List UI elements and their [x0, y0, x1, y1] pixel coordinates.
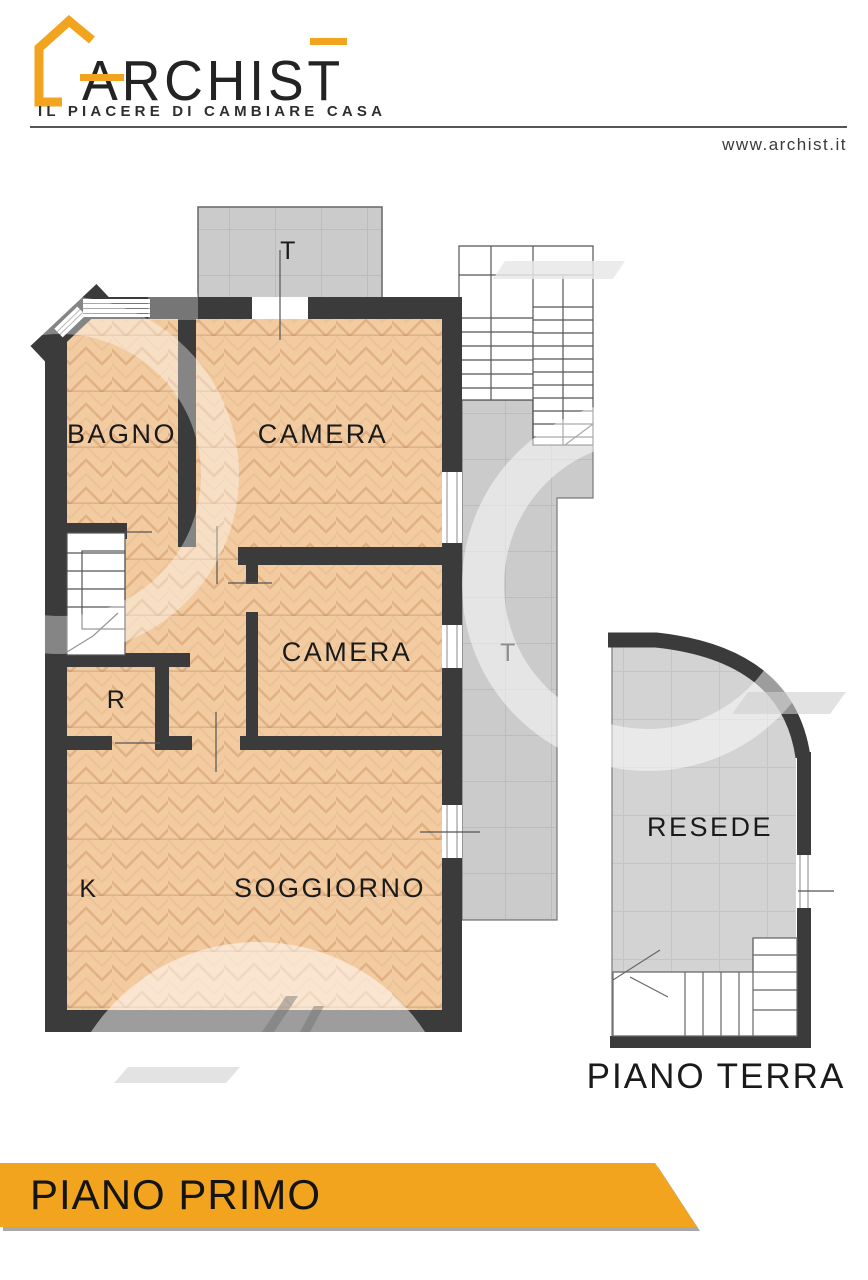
- room-label-ripostiglio: R: [107, 686, 126, 714]
- room-label-camera-1: CAMERA: [258, 419, 389, 449]
- room-label-camera-2: CAMERA: [282, 637, 413, 667]
- room-label-resede: RESEDE: [647, 812, 773, 842]
- archist-logo: ARCHIST: [30, 10, 370, 110]
- room-label-terrace-top: T: [280, 237, 296, 265]
- website-url: www.archist.it: [722, 135, 847, 155]
- ground-floor-caption: PIANO TERRA: [587, 1057, 846, 1096]
- header: ARCHIST IL PIACERE DI CAMBIARE CASA www.…: [0, 0, 868, 170]
- floor-plan-canvas: T T: [0, 0, 868, 1280]
- room-label-cucina: K: [79, 875, 96, 903]
- logo-accent-crossbar: [80, 74, 124, 81]
- brand-tagline: IL PIACERE DI CAMBIARE CASA: [38, 103, 386, 120]
- logo-accent-tbar: [310, 38, 347, 45]
- first-floor-top-terrace: T: [198, 207, 382, 301]
- logo-watermark-band: [732, 692, 846, 714]
- header-divider: [30, 126, 847, 128]
- room-label-bagno: BAGNO: [67, 419, 177, 449]
- floorplan-flyer-page: T T: [0, 0, 868, 1280]
- first-floor-banner-label: PIANO PRIMO: [30, 1163, 321, 1227]
- first-floor-banner: PIANO PRIMO: [0, 1163, 697, 1227]
- room-label-soggiorno: SOGGIORNO: [234, 873, 426, 903]
